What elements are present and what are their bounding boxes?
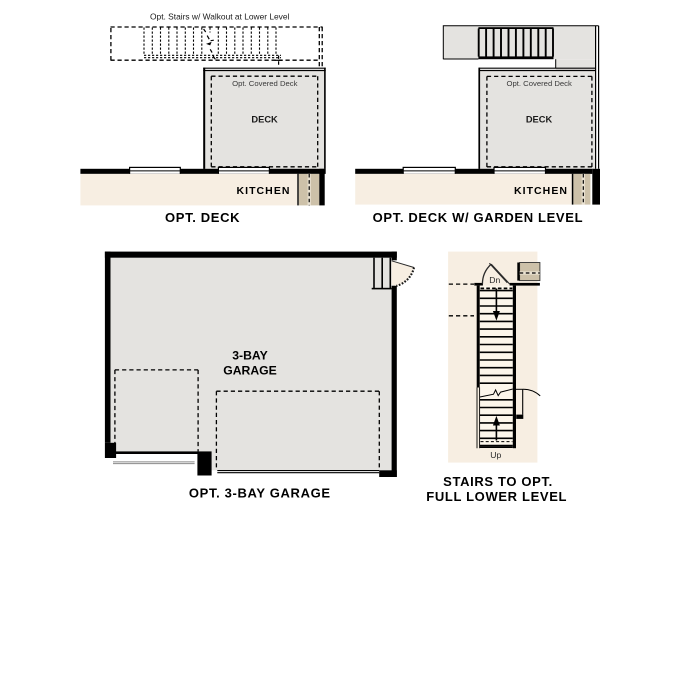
svg-text:DECK: DECK <box>251 114 278 124</box>
svg-text:Opt. Covered Deck: Opt. Covered Deck <box>507 79 573 88</box>
svg-text:Opt. Covered Deck: Opt. Covered Deck <box>232 79 298 88</box>
svg-text:3-BAY: 3-BAY <box>232 348 267 362</box>
svg-text:OPT. DECK: OPT. DECK <box>165 210 240 225</box>
svg-text:GARAGE: GARAGE <box>223 364 277 378</box>
svg-text:OPT. 3-BAY GARAGE: OPT. 3-BAY GARAGE <box>189 486 331 501</box>
svg-text:Dn: Dn <box>489 275 500 285</box>
svg-text:OPT. DECK W/ GARDEN LEVEL: OPT. DECK W/ GARDEN LEVEL <box>373 210 584 225</box>
svg-text:KITCHEN: KITCHEN <box>236 185 290 197</box>
svg-text:DECK: DECK <box>526 114 553 124</box>
svg-text:FULL LOWER LEVEL: FULL LOWER LEVEL <box>426 489 567 504</box>
svg-text:KITCHEN: KITCHEN <box>514 185 568 197</box>
svg-text:STAIRS TO OPT.: STAIRS TO OPT. <box>443 474 553 489</box>
svg-text:Opt. Stairs w/ Walkout at Lowe: Opt. Stairs w/ Walkout at Lower Level <box>150 12 289 22</box>
svg-text:Up: Up <box>490 450 501 460</box>
